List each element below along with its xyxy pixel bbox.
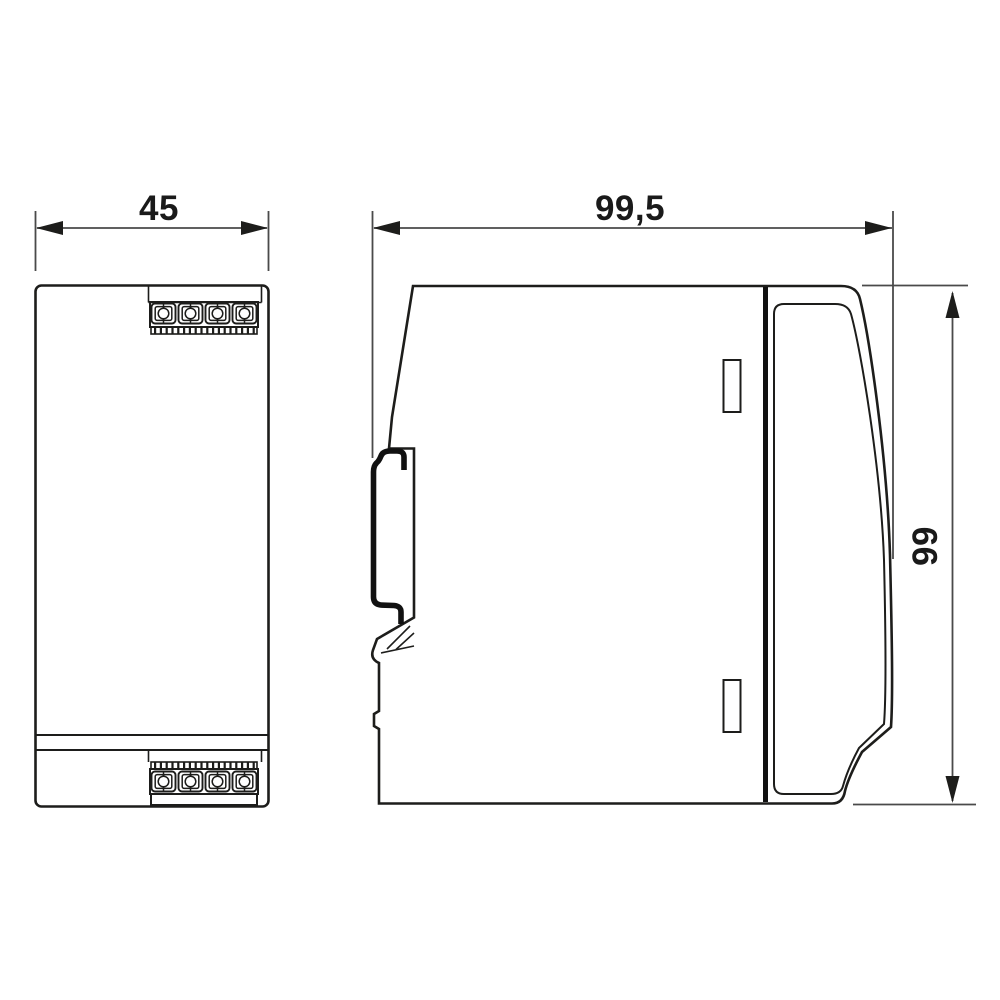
dim-label-side-height: 99 [906,526,945,566]
arrowhead-left [373,221,400,235]
dim-label-front-width: 45 [139,189,179,228]
front-body-outline [36,286,269,807]
arrowhead-right [865,221,892,235]
dim-label-side-depth: 99,5 [595,189,665,228]
arrowhead-bottom [946,776,960,803]
dimension-front-width: 45 [36,189,269,271]
drawing-canvas: 45 99,5 99 [0,0,1000,1000]
arrowhead-top [946,291,960,318]
arrowhead-right [241,221,268,235]
side-body-outline [372,286,892,804]
side-view [372,286,892,804]
din-rail-profile [374,451,405,624]
dimension-drawing: 45 99,5 99 [0,0,1000,1000]
arrowhead-left [36,221,63,235]
front-view [36,286,269,807]
